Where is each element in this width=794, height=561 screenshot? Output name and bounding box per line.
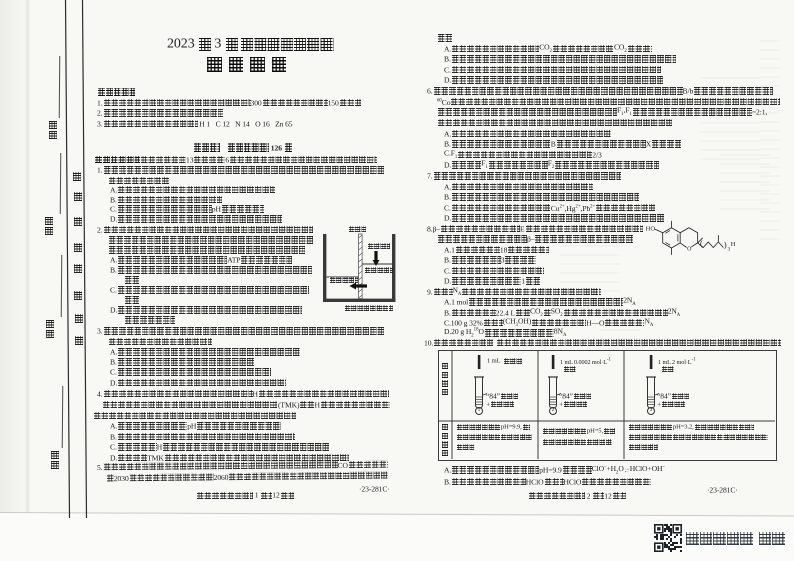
- svg-text:): ): [724, 241, 727, 250]
- svg-text:H: H: [731, 241, 736, 248]
- svg-text:O: O: [687, 246, 692, 252]
- svg-text:HO: HO: [646, 225, 656, 232]
